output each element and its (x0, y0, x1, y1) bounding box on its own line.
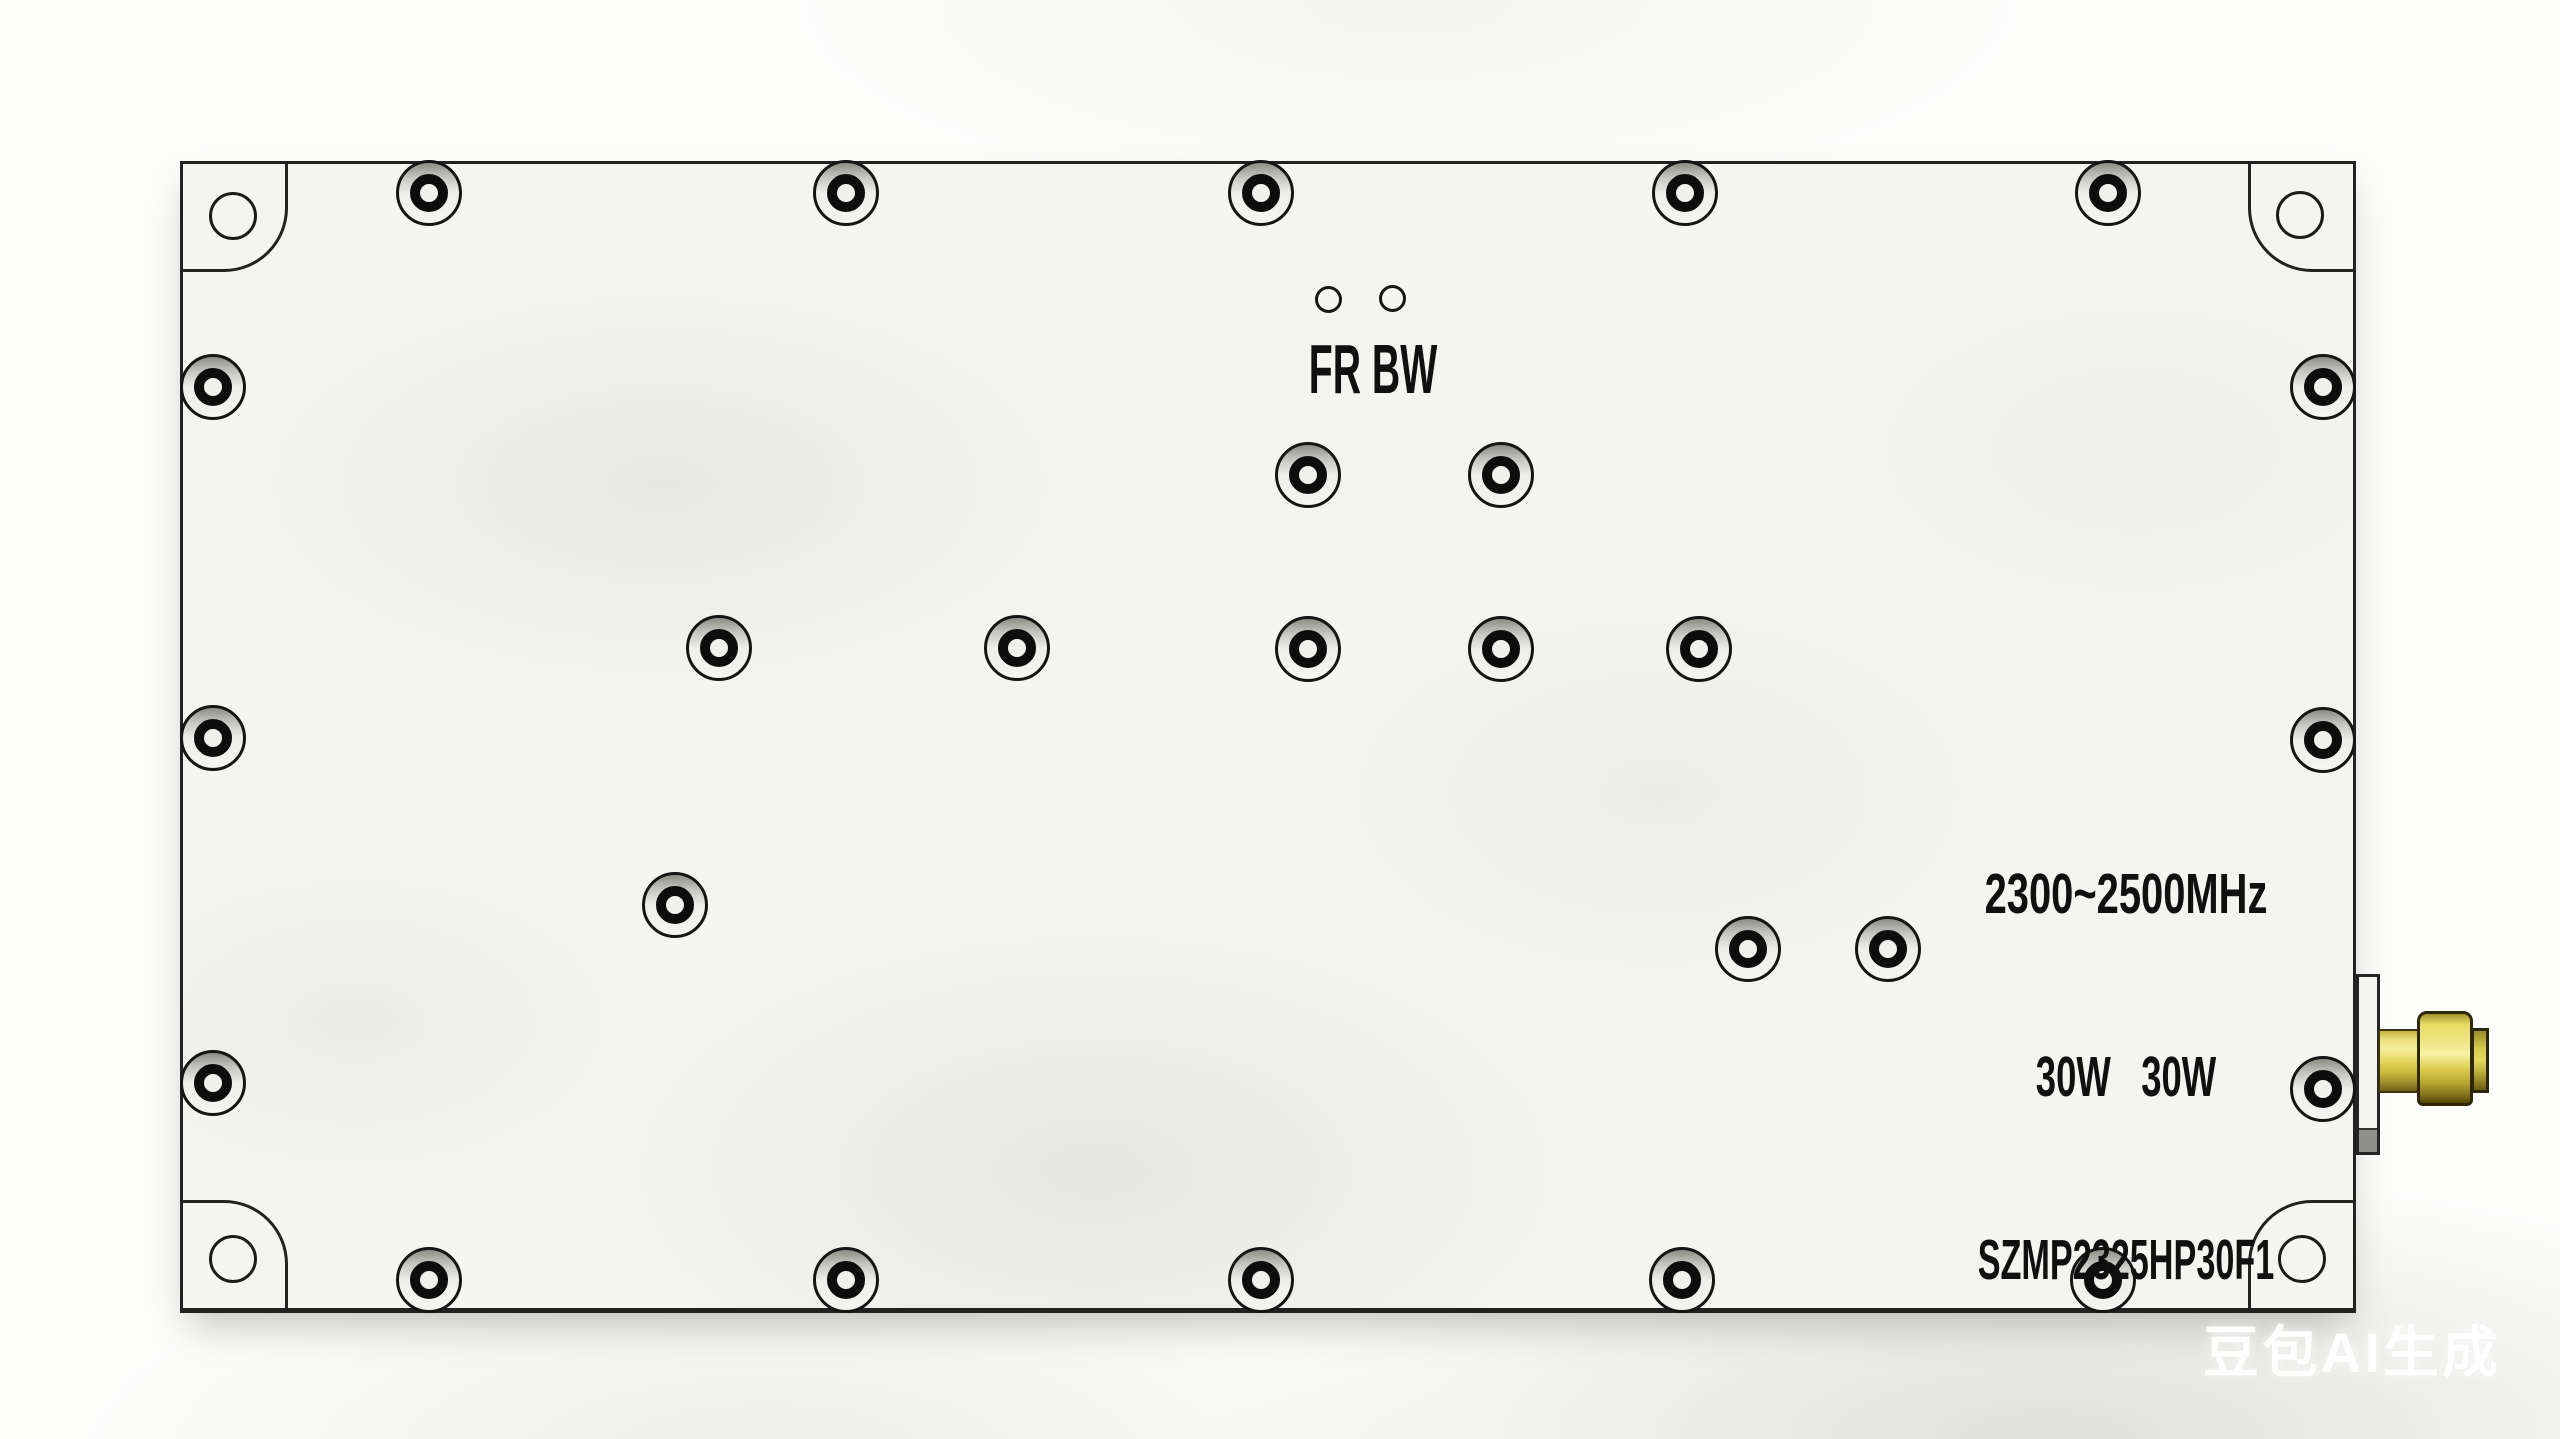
corner-mount-tab-top-left (180, 161, 288, 272)
rf-connector-barrel (2378, 1029, 2419, 1093)
indicator-labels: FR BW (1306, 334, 1440, 404)
rf-connector-tip (2471, 1028, 2489, 1093)
corner-mount-tab-top-right (2248, 161, 2356, 272)
spec-markings: 2300~2500MHz 30W 30W SZMP2325HP30F1 (1876, 742, 2376, 1352)
watermark-text: 豆包AI生成 (2203, 1308, 2501, 1389)
model-number-label: SZMP2325HP30F1 (1976, 1230, 2276, 1291)
rf-connector-nut (2417, 1011, 2473, 1106)
power-rating-label: 30W 30W (1966, 1047, 2286, 1108)
corner-mount-tab-bottom-left (180, 1200, 288, 1311)
rf-connector-flange-shadow (2359, 1128, 2377, 1152)
rf-connector-flange (2356, 974, 2380, 1155)
frequency-range-label: 2300~2500MHz (1951, 864, 2301, 925)
